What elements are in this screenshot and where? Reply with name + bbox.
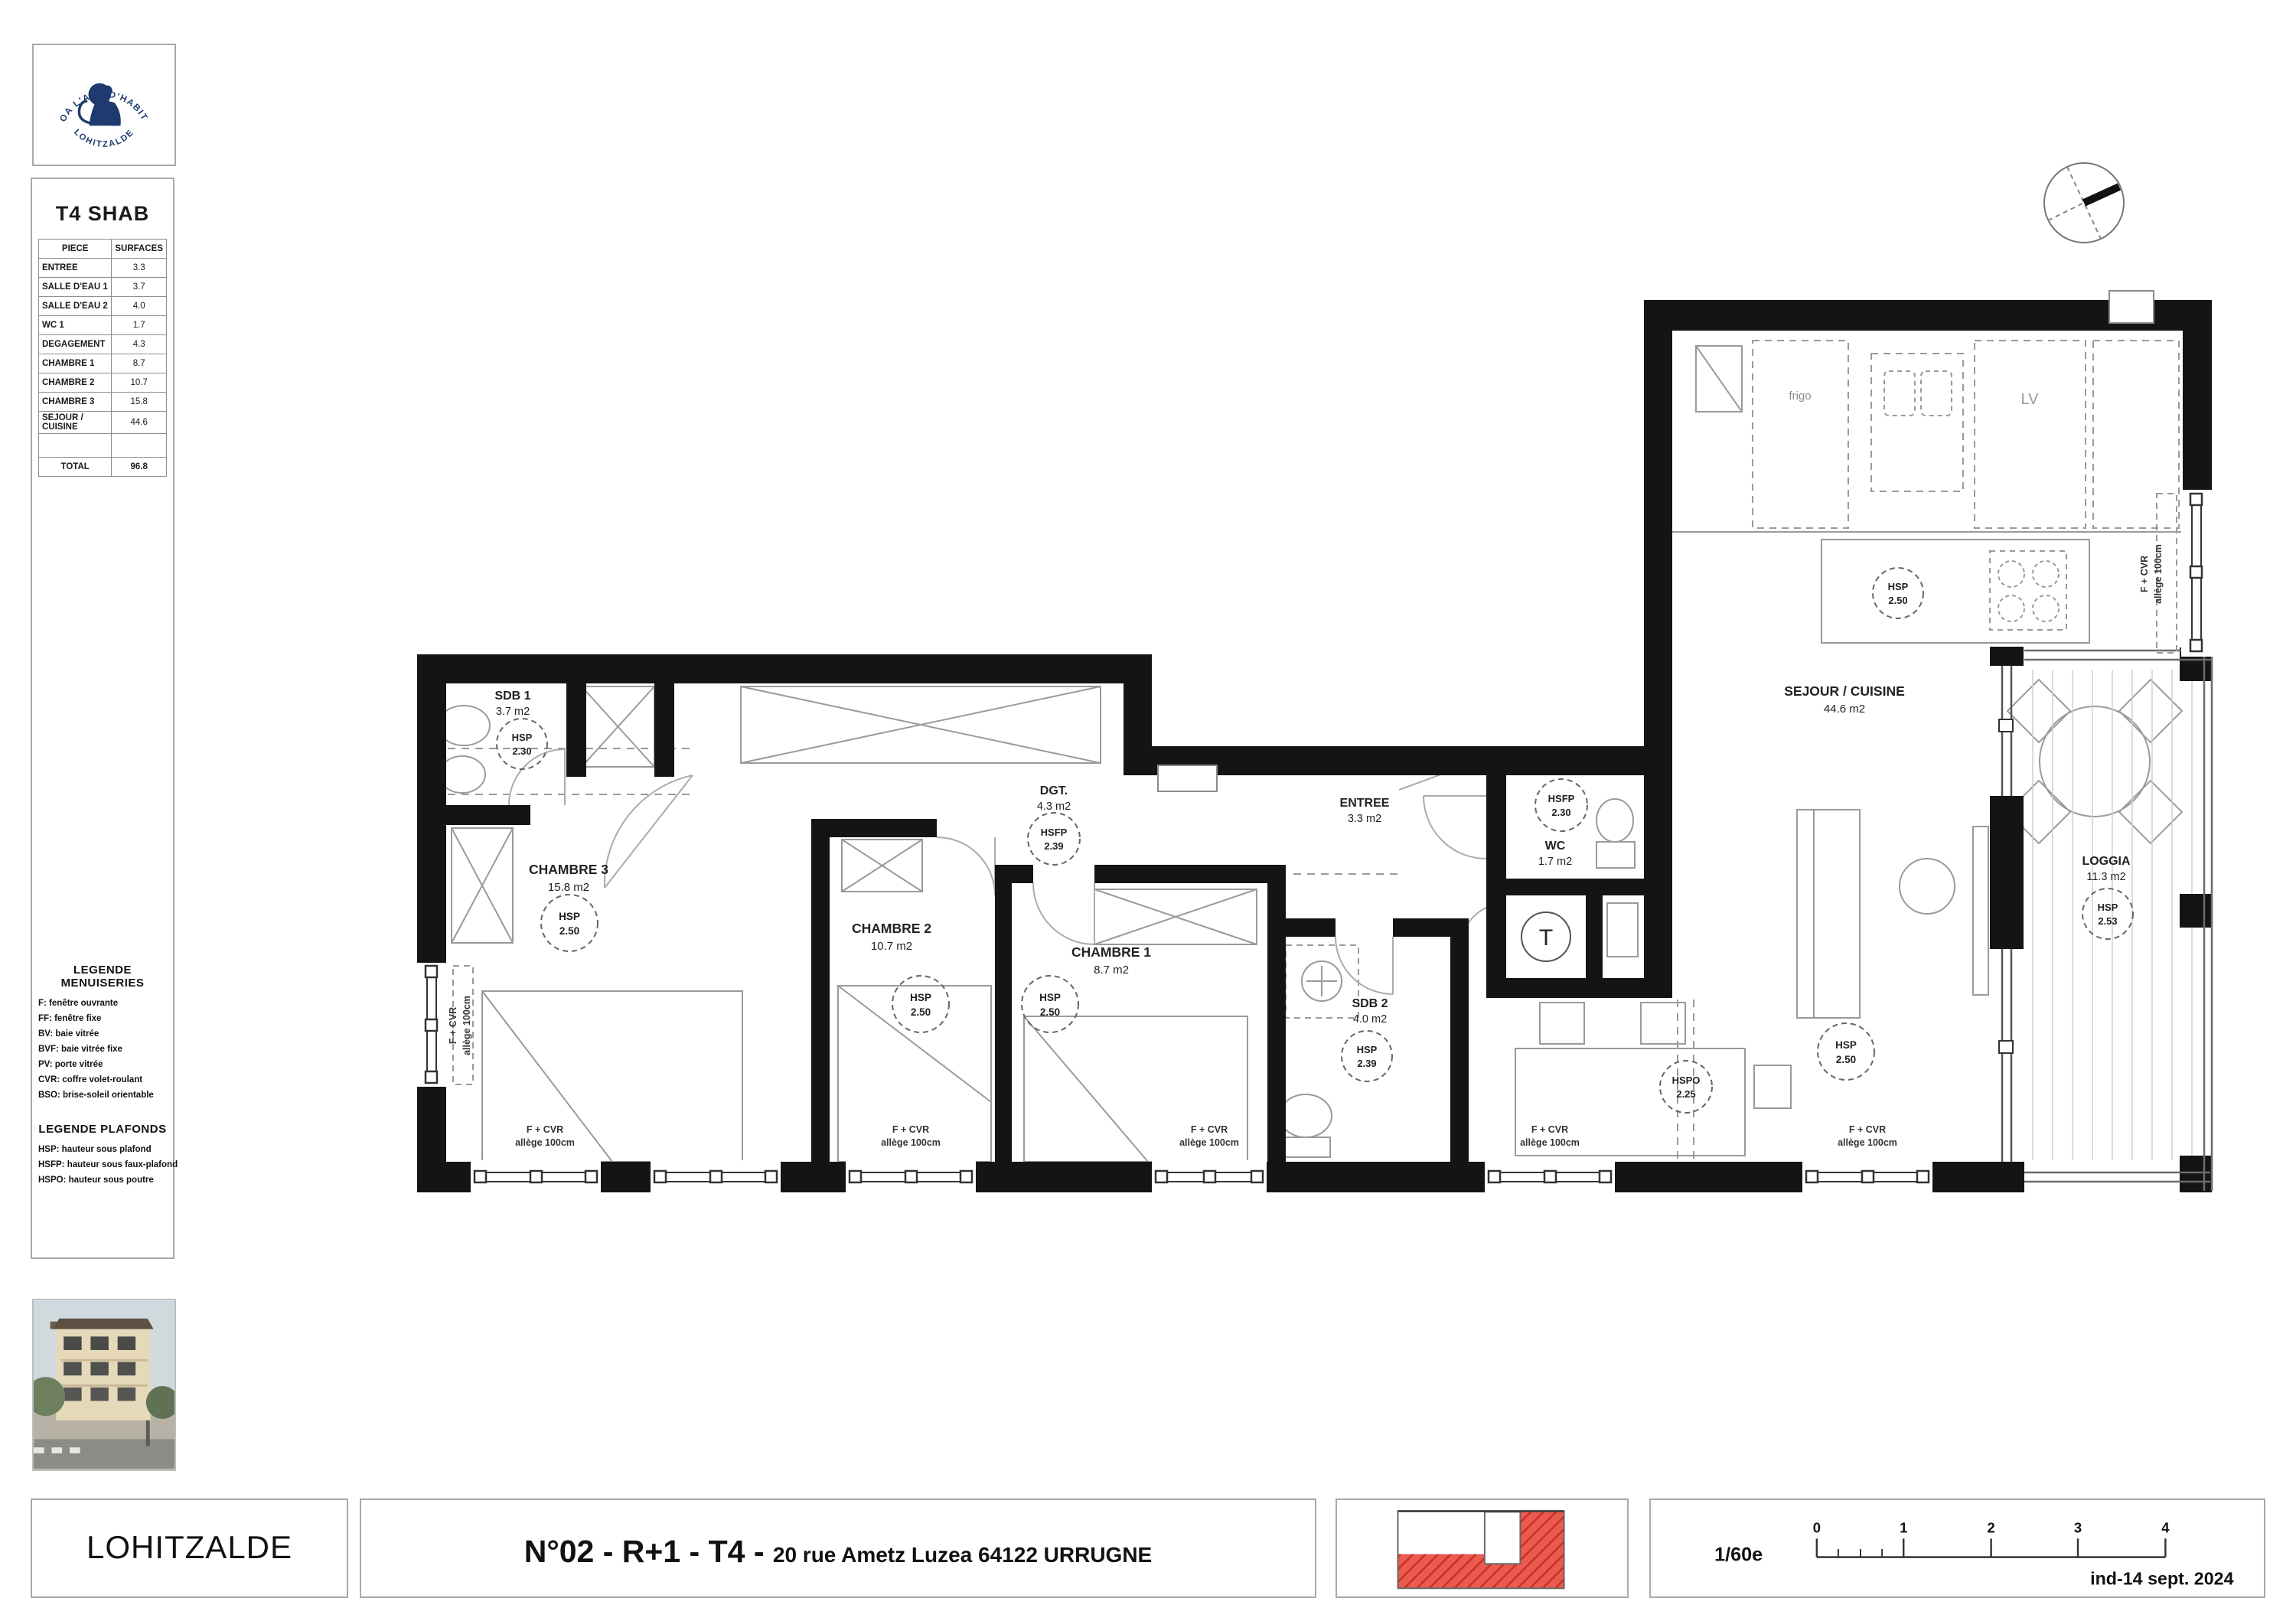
svg-text:T: T [1539,925,1553,951]
svg-text:HSFP: HSFP [1548,793,1575,804]
svg-text:F + CVR: F + CVR [2139,556,2150,592]
lot-name: LOHITZALDE [32,1529,347,1566]
sheet-title-address: 20 rue Ametz Luzea 64122 URRUGNE [773,1543,1152,1567]
svg-text:allège 100cm: allège 100cm [881,1137,941,1148]
svg-text:2.50: 2.50 [559,925,579,937]
logo-arc-top-text: STOA L'ART D'HABITER [34,45,150,123]
logo-arc-bottom-text: LOHITZALDE [72,128,136,149]
shab-title: T4 SHAB [32,202,173,226]
svg-text:4.3 m2: 4.3 m2 [1037,801,1071,813]
coffee-table [1900,859,1955,914]
window [1485,1160,1615,1194]
bed [482,991,742,1162]
svg-text:SEJOUR / CUISINE: SEJOUR / CUISINE [1784,683,1905,699]
window [1152,1160,1267,1194]
svg-text:F + CVR: F + CVR [1191,1124,1228,1135]
keyplan [1337,1500,1627,1596]
table-row: SALLE D'EAU 13.7 [39,278,167,297]
shaft [1696,346,1742,412]
table-row: SEJOUR / CUISINE44.6 [39,412,167,434]
room-label-wc: HSFP 2.30 WC 1.7 m2 [1535,779,1587,868]
footer-keyplan-box [1336,1498,1629,1598]
fridge-label: frigo [1789,390,1811,403]
walls [417,300,2212,1192]
wardrobe [741,686,1101,763]
svg-text:2.53: 2.53 [2098,915,2117,927]
legend-item: HSP: hauteur sous plafond [38,1142,167,1157]
wardrobe [842,840,922,892]
svg-text:2.30: 2.30 [512,745,531,757]
revision-date: ind-14 sept. 2024 [2090,1568,2233,1588]
svg-text:3.7 m2: 3.7 m2 [496,706,530,718]
svg-text:2.50: 2.50 [1888,595,1907,606]
svg-text:allège 100cm: allège 100cm [1520,1137,1580,1148]
svg-text:4: 4 [2161,1520,2170,1536]
svg-text:2.50: 2.50 [911,1006,931,1018]
facade-notch [2109,291,2154,323]
legend-item: F: fenêtre ouvrante [38,996,167,1011]
svg-text:HSP: HSP [512,732,533,743]
north-compass-icon [2044,163,2124,243]
svg-text:HSP: HSP [559,911,580,922]
svg-text:F + CVR: F + CVR [1849,1124,1886,1135]
plan-sheet: STOA L'ART D'HABITER LOHITZALDE T4 SHAB … [0,0,2296,1624]
room-label-sejour: SEJOUR / CUISINE 44.6 m2 HSP 2.50 [1784,683,1905,1080]
svg-text:DGT.: DGT. [1040,784,1068,797]
scale-tick-numbers: 0 1 2 3 4 [1813,1520,2170,1536]
legend-item: BVF: baie vitrée fixe [38,1042,167,1057]
room-label-chambre3: CHAMBRE 3 15.8 m2 HSP 2.50 [529,862,608,951]
svg-text:F + CVR: F + CVR [527,1124,563,1135]
table-row: CHAMBRE 210.7 [39,373,167,393]
legend-item: HSPO: hauteur sous poutre [38,1172,167,1188]
dishwasher-label: LV [2021,391,2040,408]
svg-text:15.8 m2: 15.8 m2 [548,881,589,894]
loggia-table [2040,706,2150,817]
keyplan-core [1485,1512,1521,1564]
svg-text:LOHITZALDE: LOHITZALDE [72,128,136,149]
col-header-surfaces: SURFACES [112,240,167,259]
svg-text:SDB 2: SDB 2 [1352,997,1388,1010]
tech-closet-label: T [1521,912,1570,961]
table-row: CHAMBRE 18.7 [39,354,167,373]
svg-text:2.30: 2.30 [1551,807,1570,818]
svg-text:WC: WC [1545,840,1566,853]
svg-text:F + CVR: F + CVR [1531,1124,1568,1135]
window [1802,1160,1932,1194]
svg-text:44.6 m2: 44.6 m2 [1824,703,1865,716]
svg-text:allège 100cm: allège 100cm [1179,1137,1239,1148]
svg-text:1: 1 [1900,1520,1907,1536]
island-height-circle: HSP 2.50 [1873,568,1923,618]
room-label-sdb2: SDB 2 4.0 m2 HSP 2.39 [1342,997,1392,1081]
svg-text:HSP: HSP [1357,1044,1378,1055]
svg-text:SDB 1: SDB 1 [494,690,530,703]
svg-text:3: 3 [2074,1520,2082,1536]
svg-text:2: 2 [1987,1520,1994,1536]
room-label-sdb1: SDB 1 3.7 m2 HSP 2.30 [494,690,547,769]
svg-text:LOGGIA: LOGGIA [2082,855,2131,868]
windows [416,490,2213,1194]
legend-item: PV: porte vitrée [38,1057,167,1072]
svg-text:STOA L'ART D'HABITER: STOA L'ART D'HABITER [34,45,150,123]
scale-bar: 1/60e 0 1 2 3 4 ind-14 sept. 2024 [1651,1500,2264,1596]
scale-label: 1/60e [1714,1544,1763,1565]
svg-text:HSFP: HSFP [1041,827,1068,838]
svg-text:CHAMBRE 2: CHAMBRE 2 [852,921,931,936]
svg-text:HSPO: HSPO [1672,1075,1701,1086]
table-row: WC 11.7 [39,316,167,335]
window [471,1160,601,1194]
svg-text:HSP: HSP [1888,581,1909,592]
table-row: DEGAGEMENT4.3 [39,335,167,354]
logo-box: STOA L'ART D'HABITER LOHITZALDE [32,44,176,166]
room-label-dgt: DGT. 4.3 m2 HSFP 2.39 [1028,784,1080,865]
table-total-row: TOTAL 96.8 [39,458,167,477]
svg-text:2.50: 2.50 [1040,1006,1060,1018]
building-photo-illustration [34,1300,174,1469]
window [846,1160,976,1194]
window-labels: F + CVRallège 100cm F + CVRallège 100cm … [448,544,2164,1148]
window-right [2157,490,2213,657]
legend-menuiseries-title: LEGENDE MENUISERIES [38,964,167,990]
sidebar-surface-panel: T4 SHAB PIECE SURFACES ENTREE3.3 SALLE D… [31,178,174,1259]
svg-text:10.7 m2: 10.7 m2 [871,940,912,953]
svg-text:1.7 m2: 1.7 m2 [1538,856,1572,868]
svg-text:F + CVR: F + CVR [448,1007,458,1044]
room-label-entree: ENTREE 3.3 m2 [1340,797,1390,825]
legends: LEGENDE MENUISERIES F: fenêtre ouvrante … [38,956,167,1188]
legend-plafonds-title: LEGENDE PLAFONDS [38,1123,167,1136]
svg-text:HSP: HSP [1039,992,1061,1003]
svg-text:3.3 m2: 3.3 m2 [1348,813,1381,825]
beam-height-circle: HSPO 2.25 [1660,1061,1712,1113]
svg-text:CHAMBRE 1: CHAMBRE 1 [1071,944,1151,960]
svg-text:2.25: 2.25 [1676,1088,1695,1100]
window [651,1160,781,1194]
legend-item: HSFP: hauteur sous faux-plafond [38,1157,167,1172]
svg-text:allège 100cm: allège 100cm [461,996,472,1055]
legend-item: BSO: brise-soleil orientable [38,1088,167,1103]
tv-console [1973,827,1988,995]
footer-title-box: N°02 - R+1 - T4 - 20 rue Ametz Luzea 641… [360,1498,1316,1598]
stoa-lion-logo: STOA L'ART D'HABITER LOHITZALDE [34,45,174,165]
legend-item: BV: baie vitrée [38,1026,167,1042]
wardrobe [452,828,513,943]
entry-recess [1158,765,1217,791]
svg-text:allège 100cm: allège 100cm [1838,1137,1897,1148]
surface-table: PIECE SURFACES ENTREE3.3 SALLE D'EAU 13.… [38,239,167,477]
svg-text:CHAMBRE 3: CHAMBRE 3 [529,862,608,877]
sheet-title: N°02 - R+1 - T4 - 20 rue Ametz Luzea 641… [361,1534,1315,1570]
svg-text:allège 100cm: allège 100cm [515,1137,575,1148]
svg-text:0: 0 [1813,1520,1821,1536]
wardrobe [1094,889,1257,944]
table-row: ENTREE3.3 [39,259,167,278]
wardrobe [582,686,654,767]
legend-item: CVR: coffre volet-roulant [38,1072,167,1088]
room-label-chambre1: CHAMBRE 1 8.7 m2 HSP 2.50 [1022,944,1151,1032]
table-row: SALLE D'EAU 24.0 [39,297,167,316]
svg-text:8.7 m2: 8.7 m2 [1094,964,1129,977]
svg-text:HSP: HSP [910,992,931,1003]
room-label-chambre2: CHAMBRE 2 10.7 m2 HSP 2.50 [852,921,949,1032]
footer-lot-box: LOHITZALDE [31,1498,348,1598]
sofa [1797,810,1860,1018]
lion-icon [79,83,120,126]
total-value: 96.8 [112,458,167,477]
table-header-row: PIECE SURFACES [39,240,167,259]
project-photo [32,1299,176,1471]
col-header-piece: PIECE [39,240,112,259]
svg-text:4.0 m2: 4.0 m2 [1353,1013,1387,1026]
sheet-title-main: N°02 - R+1 - T4 [524,1534,745,1569]
footer-scale-box: 1/60e 0 1 2 3 4 ind-14 sept. 2024 [1649,1498,2265,1598]
total-label: TOTAL [39,458,112,477]
table-spacer-row [39,434,167,458]
svg-text:HSP: HSP [2098,902,2118,913]
svg-text:F + CVR: F + CVR [892,1124,929,1135]
table-row: CHAMBRE 315.8 [39,393,167,412]
svg-text:2.50: 2.50 [1836,1054,1856,1065]
legend-item: FF: fenêtre fixe [38,1011,167,1026]
svg-text:allège 100cm: allège 100cm [2153,544,2164,604]
floor-plan: SDB 1 3.7 m2 HSP 2.30 CHAMBRE 3 15.8 m2 … [383,115,2265,1247]
room-label-loggia: LOGGIA 11.3 m2 HSP 2.53 [2082,855,2133,939]
svg-text:2.39: 2.39 [1357,1058,1376,1069]
svg-text:11.3 m2: 11.3 m2 [2086,871,2125,883]
svg-text:HSP: HSP [1835,1039,1857,1051]
svg-text:ENTREE: ENTREE [1340,797,1390,810]
svg-text:2.39: 2.39 [1044,840,1063,852]
